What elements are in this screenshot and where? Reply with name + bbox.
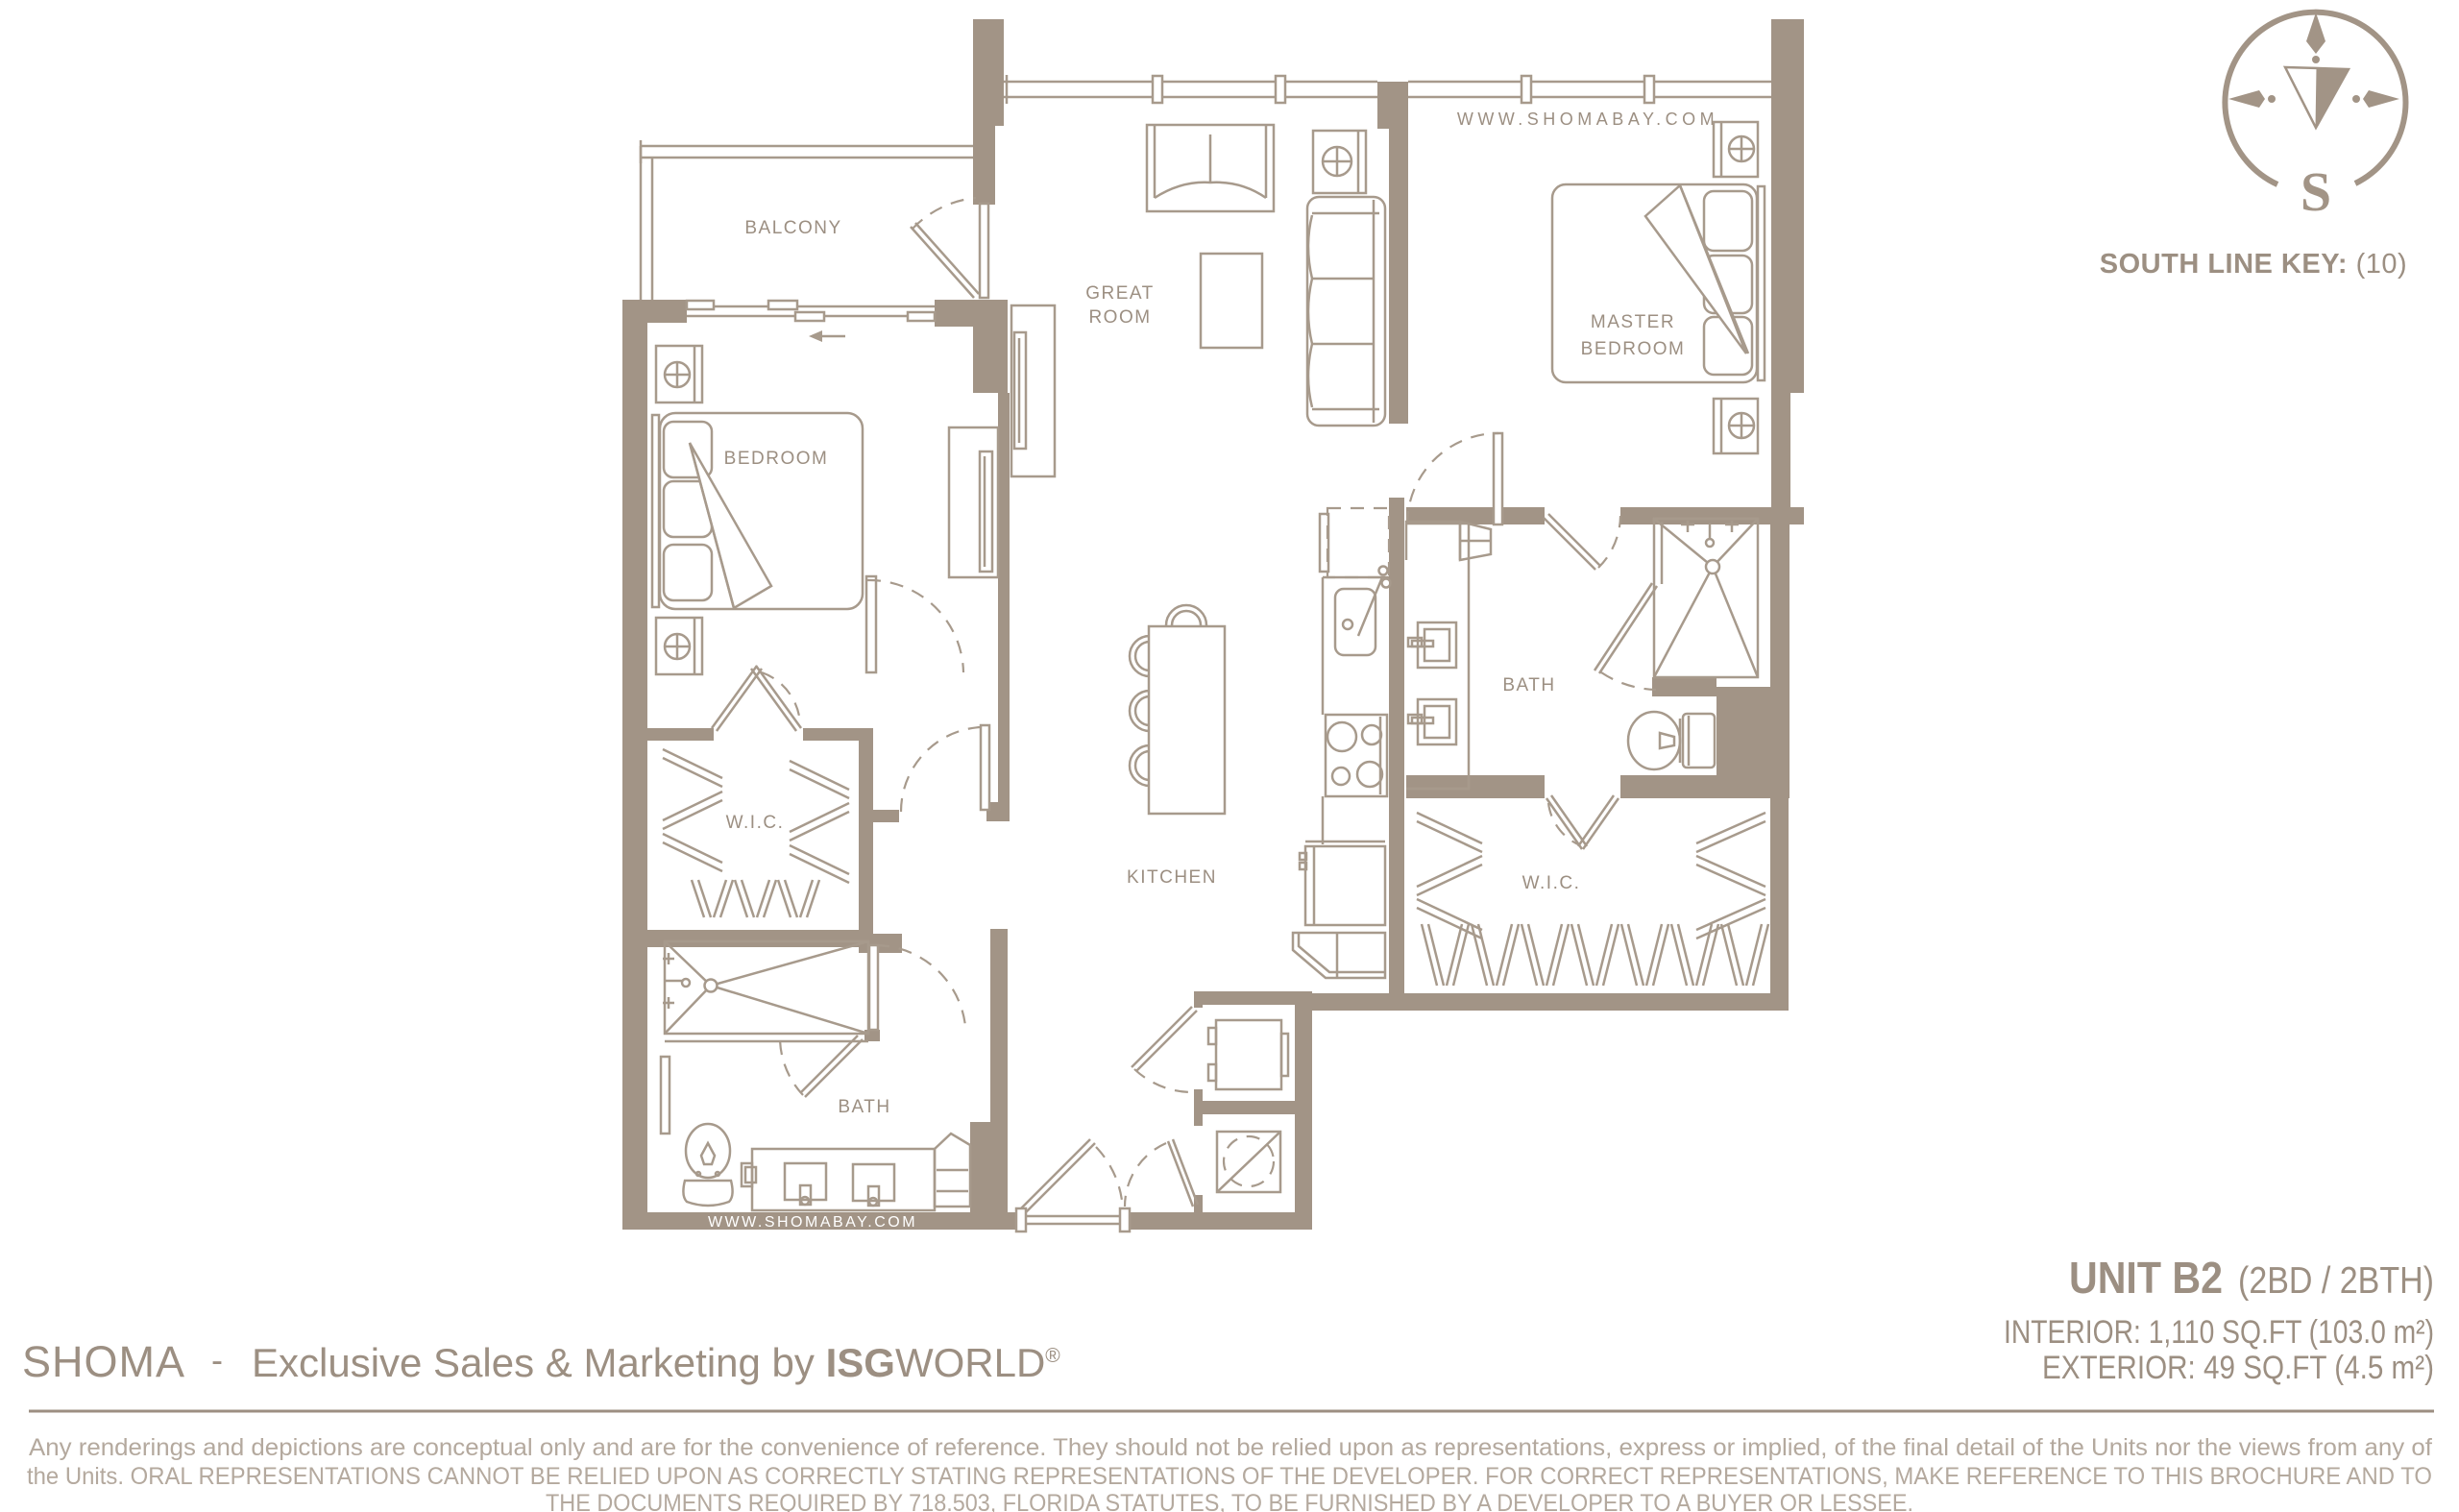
svg-text:(2BD / 2BTH): (2BD / 2BTH) xyxy=(2238,1260,2434,1302)
svg-text:the Units. ORAL REPRESENTATIO: the Units. ORAL REPRESENTATIONS CANNOT B… xyxy=(27,1463,2432,1490)
svg-text:UNIT B2: UNIT B2 xyxy=(2069,1253,2223,1303)
svg-text:INTERIOR: 1,110 SQ.FT (103.0 m: INTERIOR: 1,110 SQ.FT (103.0 m²) xyxy=(2004,1314,2434,1351)
svg-text:SOUTH LINE KEY: (10): SOUTH LINE KEY: (10) xyxy=(2100,249,2407,280)
svg-text:BATH: BATH xyxy=(1502,675,1555,695)
svg-text:-: - xyxy=(211,1340,223,1379)
svg-text:ROOM: ROOM xyxy=(1088,307,1151,328)
svg-text:W.I.C.: W.I.C. xyxy=(1522,873,1581,893)
svg-text:THE DOCUMENTS REQUIRED BY 718.: THE DOCUMENTS REQUIRED BY 718.503, FLORI… xyxy=(546,1490,1913,1512)
svg-text:EXTERIOR: 49 SQ.FT (4.5 m²): EXTERIOR: 49 SQ.FT (4.5 m²) xyxy=(2042,1350,2434,1386)
svg-text:WWW.SHOMABAY.COM: WWW.SHOMABAY.COM xyxy=(708,1214,917,1231)
svg-text:Exclusive Sales & Marketing by: Exclusive Sales & Marketing by ISGWORLD® xyxy=(252,1340,1060,1385)
svg-text:W.I.C.: W.I.C. xyxy=(726,813,785,833)
svg-text:GREAT: GREAT xyxy=(1085,283,1155,304)
svg-text:S: S xyxy=(2301,160,2331,223)
svg-text:BATH: BATH xyxy=(838,1097,890,1117)
svg-text:MASTER: MASTER xyxy=(1591,312,1675,332)
svg-text:WWW.SHOMABAY.COM: WWW.SHOMABAY.COM xyxy=(1457,110,1718,129)
svg-text:BEDROOM: BEDROOM xyxy=(1581,339,1686,359)
svg-text:SHOMA: SHOMA xyxy=(22,1337,185,1386)
svg-text:BALCONY: BALCONY xyxy=(744,218,841,238)
svg-text:KITCHEN: KITCHEN xyxy=(1127,867,1217,888)
svg-text:BEDROOM: BEDROOM xyxy=(724,449,829,469)
svg-text:Any renderings and depictions: Any renderings and depictions are concep… xyxy=(29,1434,2432,1461)
